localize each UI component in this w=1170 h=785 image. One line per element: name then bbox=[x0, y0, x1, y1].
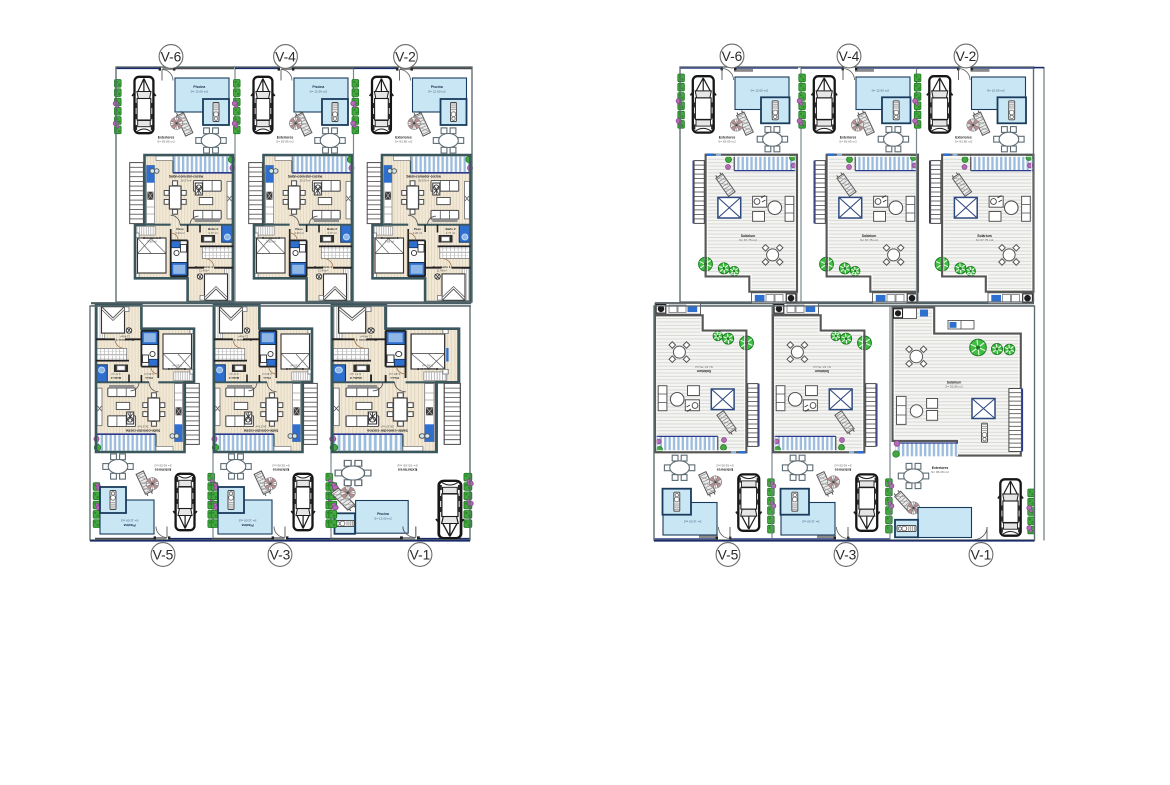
svg-text:26.57m²: 26.57m² bbox=[180, 179, 191, 183]
svg-text:V-2: V-2 bbox=[395, 49, 416, 64]
svg-text:Salón-comedor-cocina: Salón-comedor-cocina bbox=[367, 428, 408, 432]
svg-text:V-2: V-2 bbox=[956, 49, 977, 64]
svg-text:V-4: V-4 bbox=[275, 49, 296, 64]
svg-text:S= 12.00 m2: S= 12.00 m2 bbox=[750, 89, 768, 93]
svg-text:S= 83.85 m2: S= 83.85 m2 bbox=[834, 463, 852, 467]
svg-text:26.57m²: 26.57m² bbox=[255, 424, 266, 428]
svg-text:3.77 m²: 3.77 m² bbox=[208, 231, 218, 235]
svg-text:Paso: Paso bbox=[390, 376, 398, 380]
svg-text:9.85 m²: 9.85 m² bbox=[422, 364, 433, 368]
svg-text:S= 83.85 m2: S= 83.85 m2 bbox=[157, 140, 175, 144]
svg-text:3.77 m²: 3.77 m² bbox=[111, 372, 121, 376]
svg-text:9.85 m²: 9.85 m² bbox=[266, 240, 276, 244]
svg-text:Piscina: Piscina bbox=[242, 523, 254, 527]
svg-text:3.77 m²: 3.77 m² bbox=[446, 231, 456, 235]
svg-text:V-6: V-6 bbox=[722, 49, 743, 64]
svg-text:S= 83.85 m2: S= 83.85 m2 bbox=[718, 140, 736, 144]
svg-text:3.20 m²: 3.20 m² bbox=[262, 372, 272, 376]
svg-text:Piscina: Piscina bbox=[377, 512, 389, 516]
svg-text:S= 12.00 m2: S= 12.00 m2 bbox=[428, 90, 446, 94]
svg-text:11.46m²: 11.46m² bbox=[238, 335, 248, 339]
svg-text:S= 83.85 m2: S= 83.85 m2 bbox=[154, 463, 172, 467]
svg-text:S= 12.00 m2: S= 12.00 m2 bbox=[684, 520, 702, 524]
svg-text:V-1: V-1 bbox=[971, 547, 992, 562]
svg-text:S= 83.85 m2: S= 83.85 m2 bbox=[397, 463, 418, 467]
svg-text:S= 67.75 m2: S= 67.75 m2 bbox=[739, 238, 757, 242]
svg-text:9.85 m²: 9.85 m² bbox=[172, 364, 182, 368]
svg-text:11.46m²: 11.46m² bbox=[360, 335, 372, 339]
svg-text:Dormitorio 1: Dormitorio 1 bbox=[356, 338, 377, 342]
svg-text:3.20 m²: 3.20 m² bbox=[294, 231, 304, 235]
svg-text:V-5: V-5 bbox=[718, 547, 739, 562]
svg-text:V-3: V-3 bbox=[836, 547, 857, 562]
svg-text:S= 67.75 m2: S= 67.75 m2 bbox=[695, 365, 713, 369]
svg-text:S= 12.00 m2: S= 12.00 m2 bbox=[309, 90, 327, 94]
svg-text:V-6: V-6 bbox=[161, 49, 182, 64]
svg-text:Piscina: Piscina bbox=[124, 523, 136, 527]
svg-text:3.77 m²: 3.77 m² bbox=[327, 231, 337, 235]
svg-text:S= 98.28 m2: S= 98.28 m2 bbox=[931, 470, 949, 474]
svg-text:Piscina: Piscina bbox=[193, 85, 205, 89]
svg-text:11.46m²: 11.46m² bbox=[318, 269, 328, 273]
svg-text:9.85 m²: 9.85 m² bbox=[385, 240, 395, 244]
svg-text:S= 83.85 m2: S= 83.85 m2 bbox=[839, 140, 857, 144]
svg-text:3.77 m²: 3.77 m² bbox=[350, 372, 361, 376]
svg-text:Piscina: Piscina bbox=[431, 85, 443, 89]
svg-text:3.20 m²: 3.20 m² bbox=[175, 231, 185, 235]
svg-text:V-1: V-1 bbox=[410, 547, 431, 562]
svg-text:S= 83.85 m2: S= 83.85 m2 bbox=[276, 140, 294, 144]
svg-text:Baño 2: Baño 2 bbox=[350, 376, 362, 380]
svg-text:11.46m²: 11.46m² bbox=[120, 335, 130, 339]
svg-text:S= 93.85 m2: S= 93.85 m2 bbox=[945, 385, 963, 389]
svg-text:26.57m²: 26.57m² bbox=[380, 424, 394, 428]
svg-text:S= 12.00 m2: S= 12.00 m2 bbox=[802, 520, 820, 524]
svg-text:V-5: V-5 bbox=[153, 547, 174, 562]
svg-text:S= 12.00 m2: S= 12.00 m2 bbox=[871, 89, 889, 93]
svg-text:3.20 m²: 3.20 m² bbox=[144, 372, 154, 376]
svg-text:9.85 m²: 9.85 m² bbox=[147, 240, 157, 244]
svg-text:S= 67.75 m2: S= 67.75 m2 bbox=[813, 365, 831, 369]
svg-text:26.57m²: 26.57m² bbox=[299, 179, 310, 183]
svg-text:S= 83.85 m2: S= 83.85 m2 bbox=[716, 463, 734, 467]
svg-text:Dormitorio 2: Dormitorio 2 bbox=[417, 367, 438, 371]
svg-text:S= 12.00 m2: S= 12.00 m2 bbox=[239, 519, 257, 523]
svg-text:S= 83.85 m2: S= 83.85 m2 bbox=[272, 463, 290, 467]
svg-text:3.20 m²: 3.20 m² bbox=[389, 372, 400, 376]
svg-text:26.57m²: 26.57m² bbox=[418, 179, 429, 183]
svg-text:9.85 m²: 9.85 m² bbox=[290, 364, 300, 368]
svg-text:S= 67.75 m2: S= 67.75 m2 bbox=[976, 238, 994, 242]
svg-text:3.77 m²: 3.77 m² bbox=[229, 372, 239, 376]
svg-text:Piscina: Piscina bbox=[312, 85, 324, 89]
svg-text:3.20 m²: 3.20 m² bbox=[413, 231, 423, 235]
svg-text:S= 12.00 m2: S= 12.00 m2 bbox=[987, 89, 1005, 93]
svg-text:V-3: V-3 bbox=[270, 547, 291, 562]
svg-text:S= 12.00 m2: S= 12.00 m2 bbox=[121, 519, 139, 523]
svg-text:11.46m²: 11.46m² bbox=[199, 269, 209, 273]
svg-text:26.57m²: 26.57m² bbox=[137, 424, 148, 428]
svg-text:V-4: V-4 bbox=[839, 49, 860, 64]
svg-text:11.46m²: 11.46m² bbox=[436, 269, 446, 273]
svg-text:S= 83.85 m2: S= 83.85 m2 bbox=[955, 140, 973, 144]
svg-text:S= 12.00 m2: S= 12.00 m2 bbox=[374, 517, 392, 521]
svg-text:S= 83.85 m2: S= 83.85 m2 bbox=[395, 140, 413, 144]
svg-text:S= 12.00 m2: S= 12.00 m2 bbox=[190, 90, 208, 94]
svg-text:Exteriores: Exteriores bbox=[398, 468, 418, 472]
svg-text:S= 67.75 m2: S= 67.75 m2 bbox=[860, 238, 878, 242]
